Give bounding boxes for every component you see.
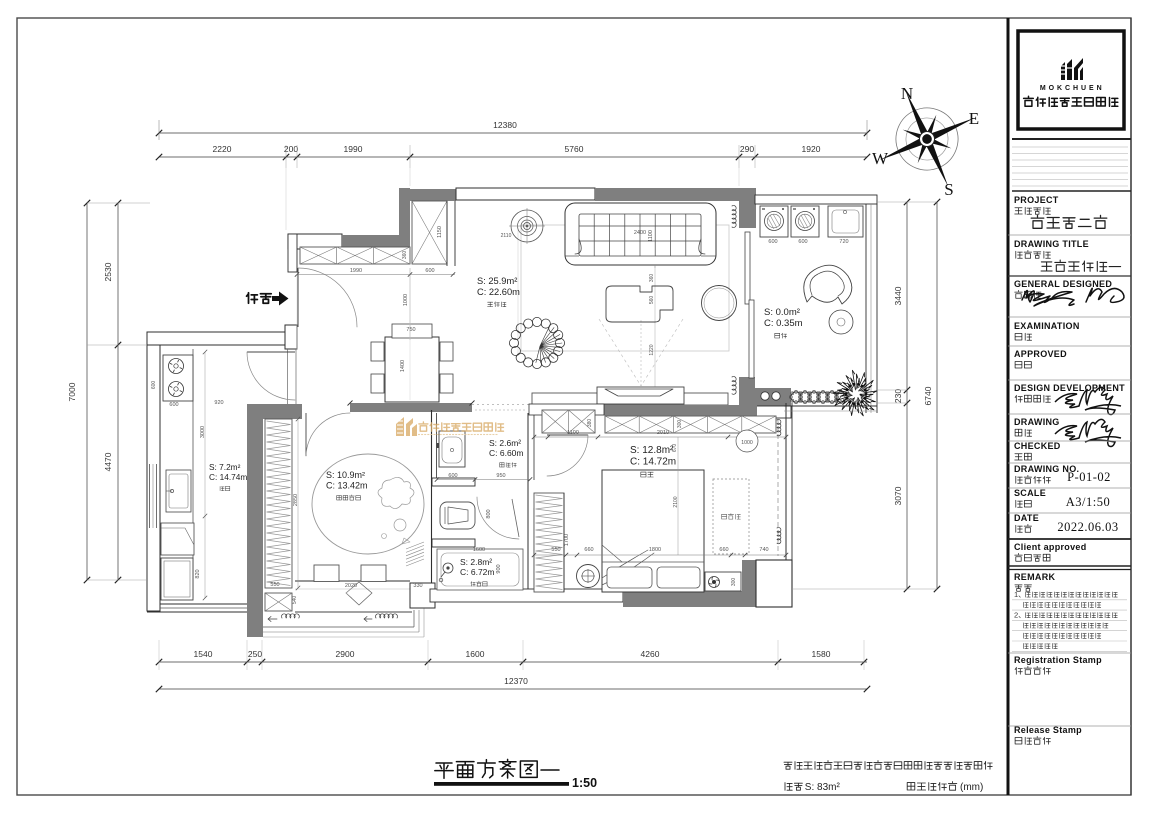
svg-text:C: 14.72m: C: 14.72m bbox=[630, 457, 676, 468]
svg-text:E: E bbox=[969, 109, 979, 128]
svg-text:660: 660 bbox=[719, 547, 728, 553]
svg-text:600: 600 bbox=[425, 268, 434, 274]
svg-text:2010: 2010 bbox=[657, 430, 669, 436]
svg-text:3000: 3000 bbox=[200, 426, 206, 438]
svg-text:1000: 1000 bbox=[741, 440, 753, 446]
svg-text:4260: 4260 bbox=[641, 649, 660, 659]
svg-text:720: 720 bbox=[839, 239, 848, 245]
svg-text:S: 2.8m²: S: 2.8m² bbox=[460, 557, 492, 567]
svg-text:360: 360 bbox=[649, 274, 655, 283]
svg-text:2400: 2400 bbox=[634, 230, 646, 236]
svg-text:1100: 1100 bbox=[648, 230, 654, 242]
svg-text:660: 660 bbox=[584, 547, 593, 553]
svg-text:900: 900 bbox=[496, 564, 502, 573]
svg-text:S: 7.2m²: S: 7.2m² bbox=[209, 462, 241, 472]
svg-text:1920: 1920 bbox=[802, 144, 821, 154]
svg-text:1990: 1990 bbox=[344, 144, 363, 154]
svg-text:APPROVED: APPROVED bbox=[1014, 349, 1067, 359]
svg-text:540: 540 bbox=[292, 596, 298, 605]
svg-text:1990: 1990 bbox=[350, 268, 362, 274]
svg-text:C: 14.74m: C: 14.74m bbox=[209, 472, 247, 482]
svg-text:C: 0.35m: C: 0.35m bbox=[764, 318, 803, 329]
svg-text:2220: 2220 bbox=[213, 144, 232, 154]
svg-text:1700: 1700 bbox=[564, 534, 570, 546]
svg-text:Registration Stamp: Registration Stamp bbox=[1014, 655, 1102, 665]
svg-text:DRAWING TITLE: DRAWING TITLE bbox=[1014, 239, 1089, 249]
svg-text:C: 22.60m: C: 22.60m bbox=[477, 287, 520, 297]
svg-text:1100: 1100 bbox=[567, 430, 579, 436]
svg-text:600: 600 bbox=[768, 239, 777, 245]
svg-text:7000: 7000 bbox=[67, 382, 77, 401]
svg-text:C: 6.60m: C: 6.60m bbox=[489, 448, 524, 458]
svg-text:560: 560 bbox=[649, 296, 655, 305]
svg-text:S: 0.0m²: S: 0.0m² bbox=[764, 307, 800, 318]
svg-text:M O K C H U E N: M O K C H U E N bbox=[1040, 85, 1102, 92]
svg-text:360: 360 bbox=[402, 251, 408, 260]
svg-text:A3/1:50: A3/1:50 bbox=[1066, 495, 1110, 509]
svg-text:380: 380 bbox=[587, 419, 593, 428]
svg-text:800: 800 bbox=[486, 509, 492, 518]
svg-text:S: 12.8m²: S: 12.8m² bbox=[630, 445, 674, 456]
svg-text:PROJECT: PROJECT bbox=[1014, 195, 1059, 205]
svg-text:950: 950 bbox=[496, 473, 505, 479]
svg-text:2850: 2850 bbox=[293, 494, 299, 506]
svg-text:600: 600 bbox=[151, 381, 157, 390]
svg-text:3440: 3440 bbox=[893, 286, 903, 305]
svg-text:S: 83m²: S: 83m² bbox=[805, 782, 841, 793]
svg-text:300: 300 bbox=[731, 578, 737, 587]
svg-text:1540: 1540 bbox=[194, 649, 213, 659]
svg-text:C: 6.72m: C: 6.72m bbox=[460, 567, 495, 577]
svg-text:2100: 2100 bbox=[673, 496, 679, 507]
svg-text:DATE: DATE bbox=[1014, 513, 1039, 523]
svg-text:S: 2.6m²: S: 2.6m² bbox=[489, 438, 521, 448]
svg-text:2530: 2530 bbox=[103, 262, 113, 281]
svg-text:1600: 1600 bbox=[466, 649, 485, 659]
svg-text:290: 290 bbox=[740, 144, 754, 154]
svg-text:1400: 1400 bbox=[400, 360, 406, 372]
svg-text:Release Stamp: Release Stamp bbox=[1014, 725, 1082, 735]
svg-text:S: S bbox=[944, 180, 953, 199]
svg-text:SCALE: SCALE bbox=[1014, 488, 1046, 498]
svg-text:12370: 12370 bbox=[504, 676, 528, 686]
svg-text:1150: 1150 bbox=[437, 226, 443, 238]
svg-text:330: 330 bbox=[413, 583, 422, 589]
svg-text:550: 550 bbox=[551, 547, 560, 553]
svg-text:2110: 2110 bbox=[501, 233, 512, 239]
svg-text:1220: 1220 bbox=[649, 344, 655, 355]
svg-text:Client approved: Client approved bbox=[1014, 542, 1087, 552]
svg-text:1、: 1、 bbox=[1014, 590, 1026, 599]
svg-text:REMARK: REMARK bbox=[1014, 572, 1055, 582]
svg-text:1:50: 1:50 bbox=[572, 776, 597, 790]
svg-text:CHECKED: CHECKED bbox=[1014, 441, 1061, 451]
svg-text:740: 740 bbox=[759, 547, 768, 553]
svg-text:6740: 6740 bbox=[923, 386, 933, 405]
svg-text:W: W bbox=[872, 149, 889, 168]
svg-text:N: N bbox=[901, 84, 913, 103]
svg-text:DRAWING: DRAWING bbox=[1014, 417, 1060, 427]
svg-text:1600: 1600 bbox=[473, 547, 485, 553]
svg-text:4470: 4470 bbox=[103, 452, 113, 471]
svg-text:920: 920 bbox=[214, 400, 223, 406]
svg-text:C: 13.42m: C: 13.42m bbox=[326, 481, 368, 491]
svg-text:600: 600 bbox=[798, 239, 807, 245]
svg-text:3070: 3070 bbox=[893, 486, 903, 505]
svg-text:250: 250 bbox=[248, 649, 262, 659]
svg-text:EXAMINATION: EXAMINATION bbox=[1014, 321, 1080, 331]
svg-text:550: 550 bbox=[270, 582, 279, 588]
svg-text:820: 820 bbox=[195, 569, 201, 578]
svg-text:600: 600 bbox=[448, 473, 457, 479]
svg-text:DESIGN DEVELOPMENT: DESIGN DEVELOPMENT bbox=[1014, 383, 1125, 393]
svg-text:(mm): (mm) bbox=[960, 782, 983, 793]
svg-text:2900: 2900 bbox=[336, 649, 355, 659]
svg-text:1580: 1580 bbox=[812, 649, 831, 659]
svg-text:S: 25.9m²: S: 25.9m² bbox=[477, 276, 517, 286]
svg-text:1000: 1000 bbox=[403, 294, 409, 306]
svg-text:12380: 12380 bbox=[493, 120, 517, 130]
svg-text:750: 750 bbox=[406, 327, 415, 333]
svg-text:S: 10.9m²: S: 10.9m² bbox=[326, 470, 365, 480]
svg-text:2020: 2020 bbox=[345, 583, 357, 589]
svg-text:600: 600 bbox=[169, 402, 178, 408]
svg-text:1800: 1800 bbox=[649, 547, 661, 553]
svg-text:2022.06.03: 2022.06.03 bbox=[1057, 520, 1118, 534]
svg-text:5760: 5760 bbox=[565, 144, 584, 154]
svg-text:P-01-02: P-01-02 bbox=[1067, 470, 1111, 484]
svg-text:230: 230 bbox=[893, 389, 903, 403]
svg-text:2、: 2、 bbox=[1014, 611, 1026, 620]
svg-text:GENERAL DESIGNED: GENERAL DESIGNED bbox=[1014, 279, 1112, 289]
svg-text:300: 300 bbox=[677, 420, 683, 429]
